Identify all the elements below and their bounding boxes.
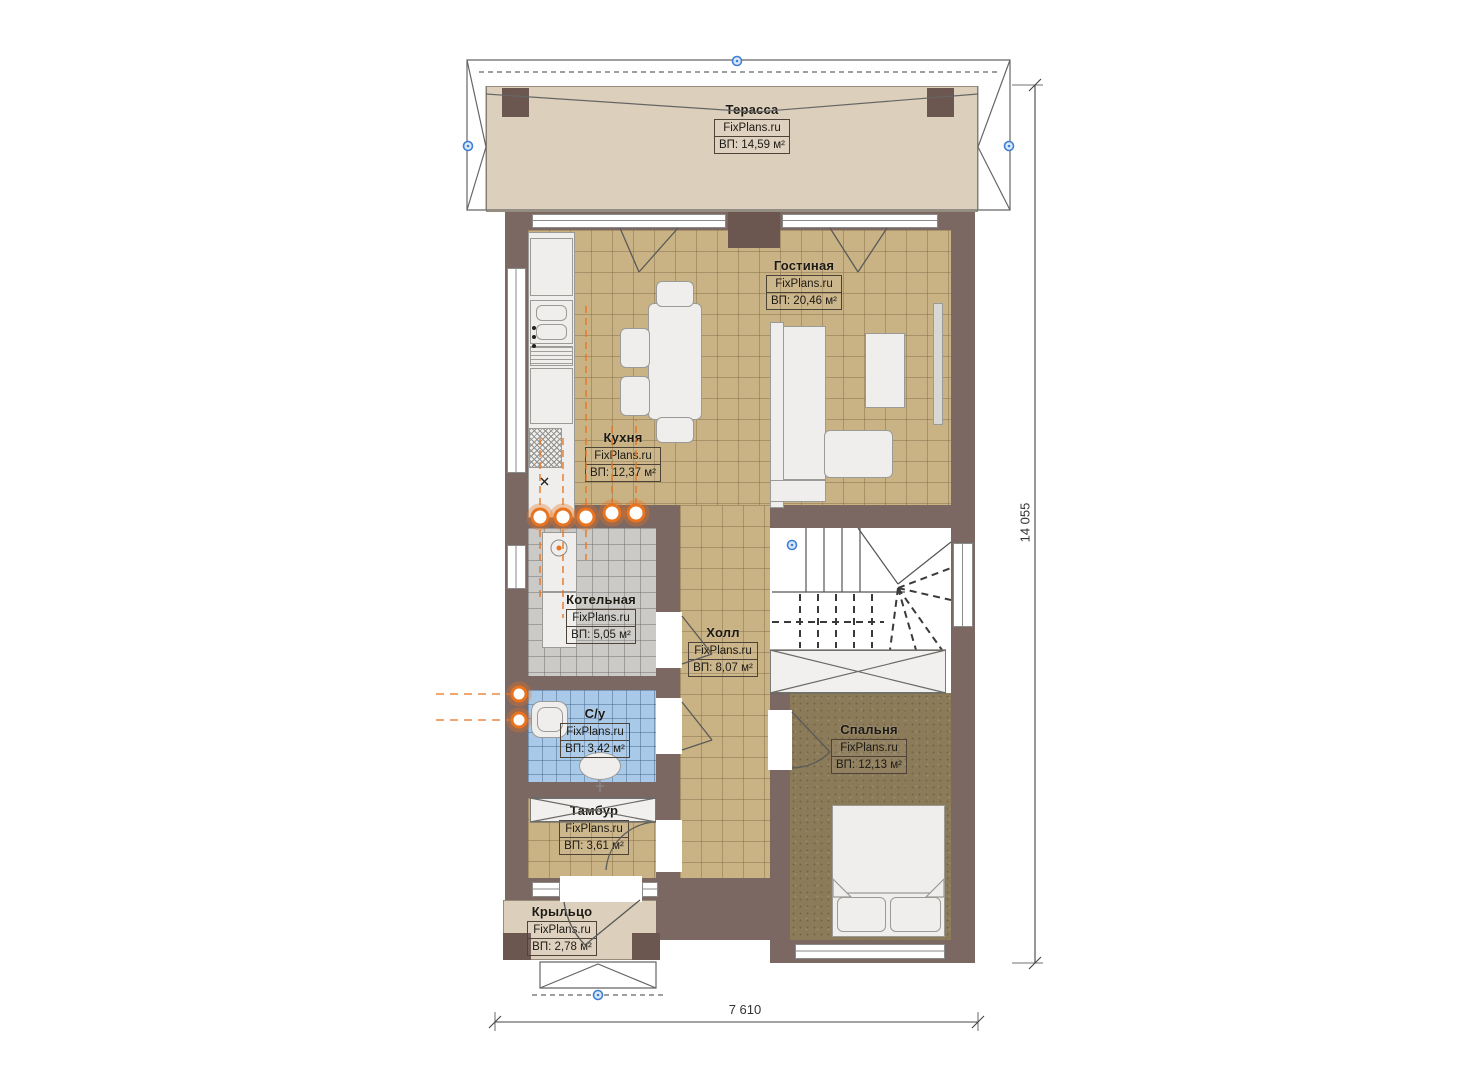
room-area: ВП: 3,61 м²	[559, 837, 629, 855]
room-area: ВП: 5,05 м²	[566, 626, 636, 644]
watermark-text: FixPlans.ru	[714, 119, 790, 137]
door-opening-bedroom	[768, 710, 792, 770]
dining-chair	[620, 328, 650, 368]
window-boiler	[507, 545, 526, 589]
watermark-text: FixPlans.ru	[527, 921, 597, 939]
boiler-unit	[542, 532, 577, 592]
room-label-living: Гостиная FixPlans.ru ВП: 20,46 м²	[756, 258, 852, 310]
room-name: Гостиная	[756, 258, 852, 273]
door-opening-vestibule	[656, 820, 682, 872]
sofa-seat	[783, 326, 826, 480]
watermark-text: FixPlans.ru	[566, 609, 636, 627]
dining-chair	[656, 281, 694, 307]
watermark-text: FixPlans.ru	[585, 447, 661, 465]
room-label-porch: Крыльцо FixPlans.ru ВП: 2,78 м²	[516, 904, 608, 956]
room-label-box: FixPlans.ru ВП: 3,61 м²	[559, 820, 629, 855]
room-name: С/у	[552, 706, 638, 721]
room-name: Кухня	[577, 430, 669, 445]
room-name: Котельная	[556, 592, 646, 607]
bedroom-closet	[770, 650, 946, 693]
terrace-column-right	[927, 88, 954, 117]
room-label-terrace: Терасса FixPlans.ru ВП: 14,59 м²	[704, 102, 800, 154]
pillow	[837, 897, 886, 932]
room-name: Терасса	[704, 102, 800, 117]
wall-living-stairs	[770, 505, 951, 528]
door-opening-entry	[560, 876, 642, 902]
window-terrace-left	[532, 214, 726, 228]
kitchen-sink	[530, 300, 573, 344]
room-label-box: FixPlans.ru ВП: 3,42 м²	[560, 723, 630, 758]
room-label-box: FixPlans.ru ВП: 5,05 м²	[566, 609, 636, 644]
room-label-box: FixPlans.ru ВП: 8,07 м²	[688, 642, 758, 677]
terrace-column-left	[502, 88, 529, 117]
room-label-box: FixPlans.ru ВП: 14,59 м²	[714, 119, 790, 154]
room-label-box: FixPlans.ru ВП: 12,13 м²	[831, 739, 907, 774]
watermark-text: FixPlans.ru	[688, 642, 758, 660]
room-area: ВП: 12,13 м²	[831, 756, 907, 774]
window-kitchen	[507, 268, 526, 473]
hall-floor	[680, 505, 770, 878]
room-label-box: FixPlans.ru ВП: 20,46 м²	[766, 275, 842, 310]
room-area: ВП: 20,46 м²	[766, 292, 842, 310]
room-label-vestibule: Тамбур FixPlans.ru ВП: 3,61 м²	[550, 803, 638, 855]
watermark-text: FixPlans.ru	[559, 820, 629, 838]
wall-bathroom-vestibule	[528, 782, 656, 798]
sink-bowl	[536, 324, 567, 340]
wall-corner-block	[656, 878, 770, 940]
room-label-bathroom: С/у FixPlans.ru ВП: 3,42 м²	[552, 706, 638, 758]
watermark-text: FixPlans.ru	[831, 739, 907, 757]
room-label-box: FixPlans.ru ВП: 2,78 м²	[527, 921, 597, 956]
coffee-table	[865, 333, 905, 408]
sink-bowl	[536, 305, 567, 321]
dining-table	[648, 303, 702, 420]
dining-chair	[620, 376, 650, 416]
room-label-box: FixPlans.ru ВП: 12,37 м²	[585, 447, 661, 482]
radiator	[933, 303, 943, 425]
room-label-boiler: Котельная FixPlans.ru ВП: 5,05 м²	[556, 592, 646, 644]
room-name: Тамбур	[550, 803, 638, 818]
dimension-width: 7 610	[715, 1002, 775, 1017]
kitchen-cabinet	[530, 368, 573, 424]
watermark-text: FixPlans.ru	[560, 723, 630, 741]
watermark-text: FixPlans.ru	[766, 275, 842, 293]
room-name: Спальня	[822, 722, 916, 737]
room-label-hall: Холл FixPlans.ru ВП: 8,07 м²	[678, 625, 768, 677]
window-terrace-right	[782, 214, 938, 228]
cooktop	[529, 428, 562, 468]
room-area: ВП: 3,42 м²	[560, 740, 630, 758]
window-vestibule-right	[642, 882, 658, 897]
window-stairs	[953, 543, 973, 627]
room-label-bedroom: Спальня FixPlans.ru ВП: 12,13 м²	[822, 722, 916, 774]
pillow	[890, 897, 941, 932]
dishwasher	[530, 346, 573, 366]
porch-column-right	[632, 933, 660, 960]
canopy-outline	[532, 962, 664, 995]
room-label-kitchen: Кухня FixPlans.ru ВП: 12,37 м²	[577, 430, 669, 482]
sofa-armrest	[770, 480, 826, 502]
room-area: ВП: 2,78 м²	[527, 938, 597, 956]
window-bedroom	[795, 944, 945, 959]
dimension-height: 14 055	[1018, 493, 1033, 553]
room-area: ВП: 12,37 м²	[585, 464, 661, 482]
stairs-area	[770, 528, 951, 650]
wall-boiler-bathroom	[528, 676, 656, 690]
door-opening-bathroom	[656, 698, 682, 754]
floor-plan-canvas: Терасса FixPlans.ru ВП: 14,59 м² Гостина…	[0, 0, 1474, 1080]
wall-pier-terrace	[728, 212, 780, 248]
window-vestibule-left	[532, 882, 560, 897]
room-area: ВП: 14,59 м²	[714, 136, 790, 154]
sofa-chaise	[824, 430, 893, 478]
room-name: Холл	[678, 625, 768, 640]
room-name: Крыльцо	[516, 904, 608, 919]
room-area: ВП: 8,07 м²	[688, 659, 758, 677]
fridge	[530, 238, 573, 296]
